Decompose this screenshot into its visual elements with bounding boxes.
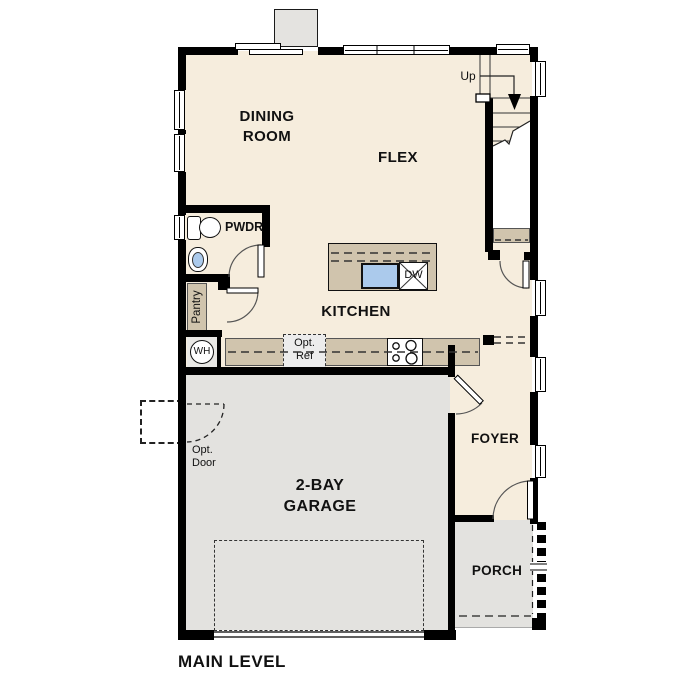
window-left-dining-2 <box>174 134 185 172</box>
wall-closet-stub-right <box>524 252 530 260</box>
powder-sink-basin <box>192 252 204 268</box>
wall-right-4 <box>530 392 538 445</box>
wall-pantry-stub <box>218 274 230 290</box>
window-right-foyer-1 <box>535 357 546 392</box>
wall-bottom-left <box>178 630 214 640</box>
optional-refrigerator: Opt. Ref <box>283 334 326 371</box>
wall-foyer-left <box>448 413 455 630</box>
plan-title: MAIN LEVEL <box>178 652 338 672</box>
wall-opening-stub <box>483 335 494 345</box>
window-left-dining-1 <box>174 90 185 130</box>
window-top-wide <box>343 45 450 55</box>
kitchen-counter <box>225 338 480 366</box>
wall-foyer-left-top <box>448 345 455 377</box>
dining-room-label: DINING ROOM <box>207 107 327 147</box>
wall-left-3 <box>178 172 186 215</box>
wall-wh-right <box>217 337 221 367</box>
toilet-bowl <box>199 217 221 238</box>
stair-closet-shelf <box>493 228 530 243</box>
wall-left-1 <box>178 47 186 90</box>
wall-left-4 <box>178 240 186 632</box>
window-top-stagger-2 <box>249 49 303 55</box>
porch-label: PORCH <box>467 563 527 578</box>
floor-plan: Opt. Ref <box>0 0 687 687</box>
window-left-pwdr <box>174 215 185 240</box>
opt-ref-label-line2: Ref <box>284 350 325 363</box>
optional-door-outline <box>140 400 183 444</box>
garage-dashed-outline <box>214 540 424 631</box>
kitchen-label: KITCHEN <box>306 303 406 320</box>
powder-room-label: PWDR <box>225 220 267 234</box>
foyer-floor-fill <box>450 340 532 520</box>
window-right-foyer-2 <box>535 445 546 478</box>
wall-right-2 <box>530 96 538 280</box>
wall-bottom-right <box>424 630 456 640</box>
wall-foyer-bottom <box>455 515 494 522</box>
garage-door-opening <box>214 630 424 640</box>
garage-label: 2-BAY GARAGE <box>260 475 380 517</box>
wall-top-3 <box>450 47 497 55</box>
wall-right-5 <box>530 478 538 524</box>
chimney <box>274 9 318 47</box>
wall-porch-corner <box>532 618 546 630</box>
wall-stair <box>485 98 493 252</box>
optional-door-label: Opt. Door <box>192 444 232 470</box>
dishwasher-label: DW <box>399 269 428 281</box>
wall-pwdr-top <box>186 205 270 213</box>
wall-top-1 <box>178 47 238 55</box>
pantry-label: Pantry <box>186 282 208 332</box>
window-right-stair <box>535 61 546 97</box>
wall-kitchen-garage <box>178 367 455 375</box>
window-right-hall <box>535 280 546 316</box>
wall-top-2 <box>318 47 344 55</box>
island-sink <box>361 263 399 289</box>
foyer-label: FOYER <box>466 431 524 446</box>
wall-right-3 <box>530 316 538 357</box>
up-label: Up <box>457 69 479 83</box>
opt-ref-label-line1: Opt. <box>284 337 325 350</box>
wall-right-1 <box>530 47 538 62</box>
water-heater-label: WH <box>190 340 214 364</box>
cooktop <box>387 338 423 366</box>
flex-label: FLEX <box>368 149 428 166</box>
window-top-right <box>496 44 530 55</box>
